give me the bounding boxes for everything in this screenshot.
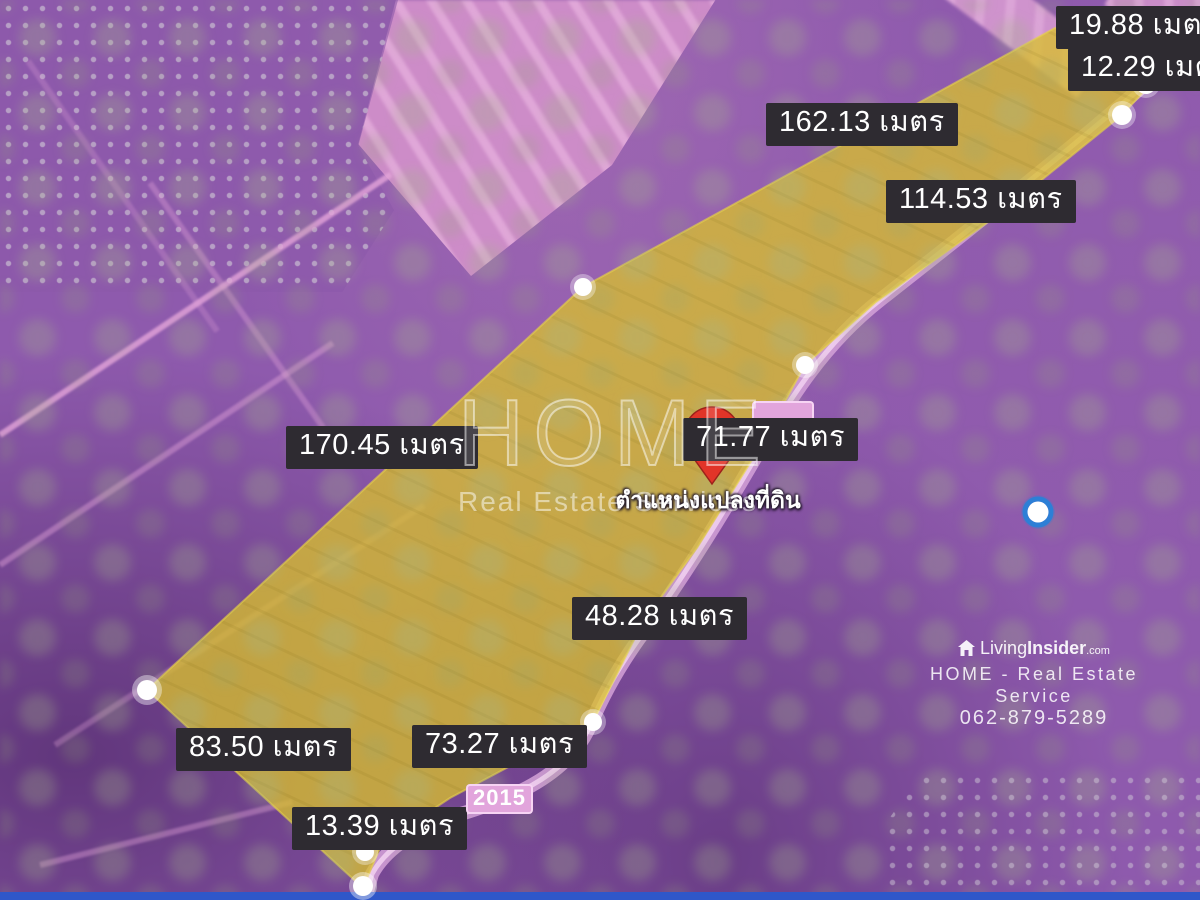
- vertex-dot[interactable]: [792, 352, 818, 378]
- measurement-label: 73.27 เมตร: [412, 725, 587, 768]
- vertex-dot[interactable]: [132, 675, 162, 705]
- measurement-label: 114.53 เมตร: [886, 180, 1076, 223]
- road-badge: 2015: [466, 784, 533, 814]
- measurement-label: 19.88 เมตร: [1056, 6, 1200, 49]
- measurement-label: 170.45 เมตร: [286, 426, 478, 469]
- satellite-map[interactable]: 19.88 เมตร 12.29 เมตร 162.13 เมตร 114.53…: [0, 0, 1200, 900]
- measurement-label: 162.13 เมตร: [766, 103, 958, 146]
- measurement-label: 71.77 เมตร: [683, 418, 858, 461]
- measurement-label: 12.29 เมตร: [1068, 48, 1200, 91]
- measurement-label: 13.39 เมตร: [292, 807, 467, 850]
- pin-caption: ตำแหน่งแปลงที่ดิน: [602, 483, 814, 519]
- vertex-dot[interactable]: [349, 872, 377, 900]
- measurement-label: 83.50 เมตร: [176, 728, 351, 771]
- gps-dot-icon: [1021, 495, 1055, 529]
- vertex-dot[interactable]: [570, 274, 596, 300]
- vertex-dot[interactable]: [1108, 101, 1136, 129]
- measurement-label: 48.28 เมตร: [572, 597, 747, 640]
